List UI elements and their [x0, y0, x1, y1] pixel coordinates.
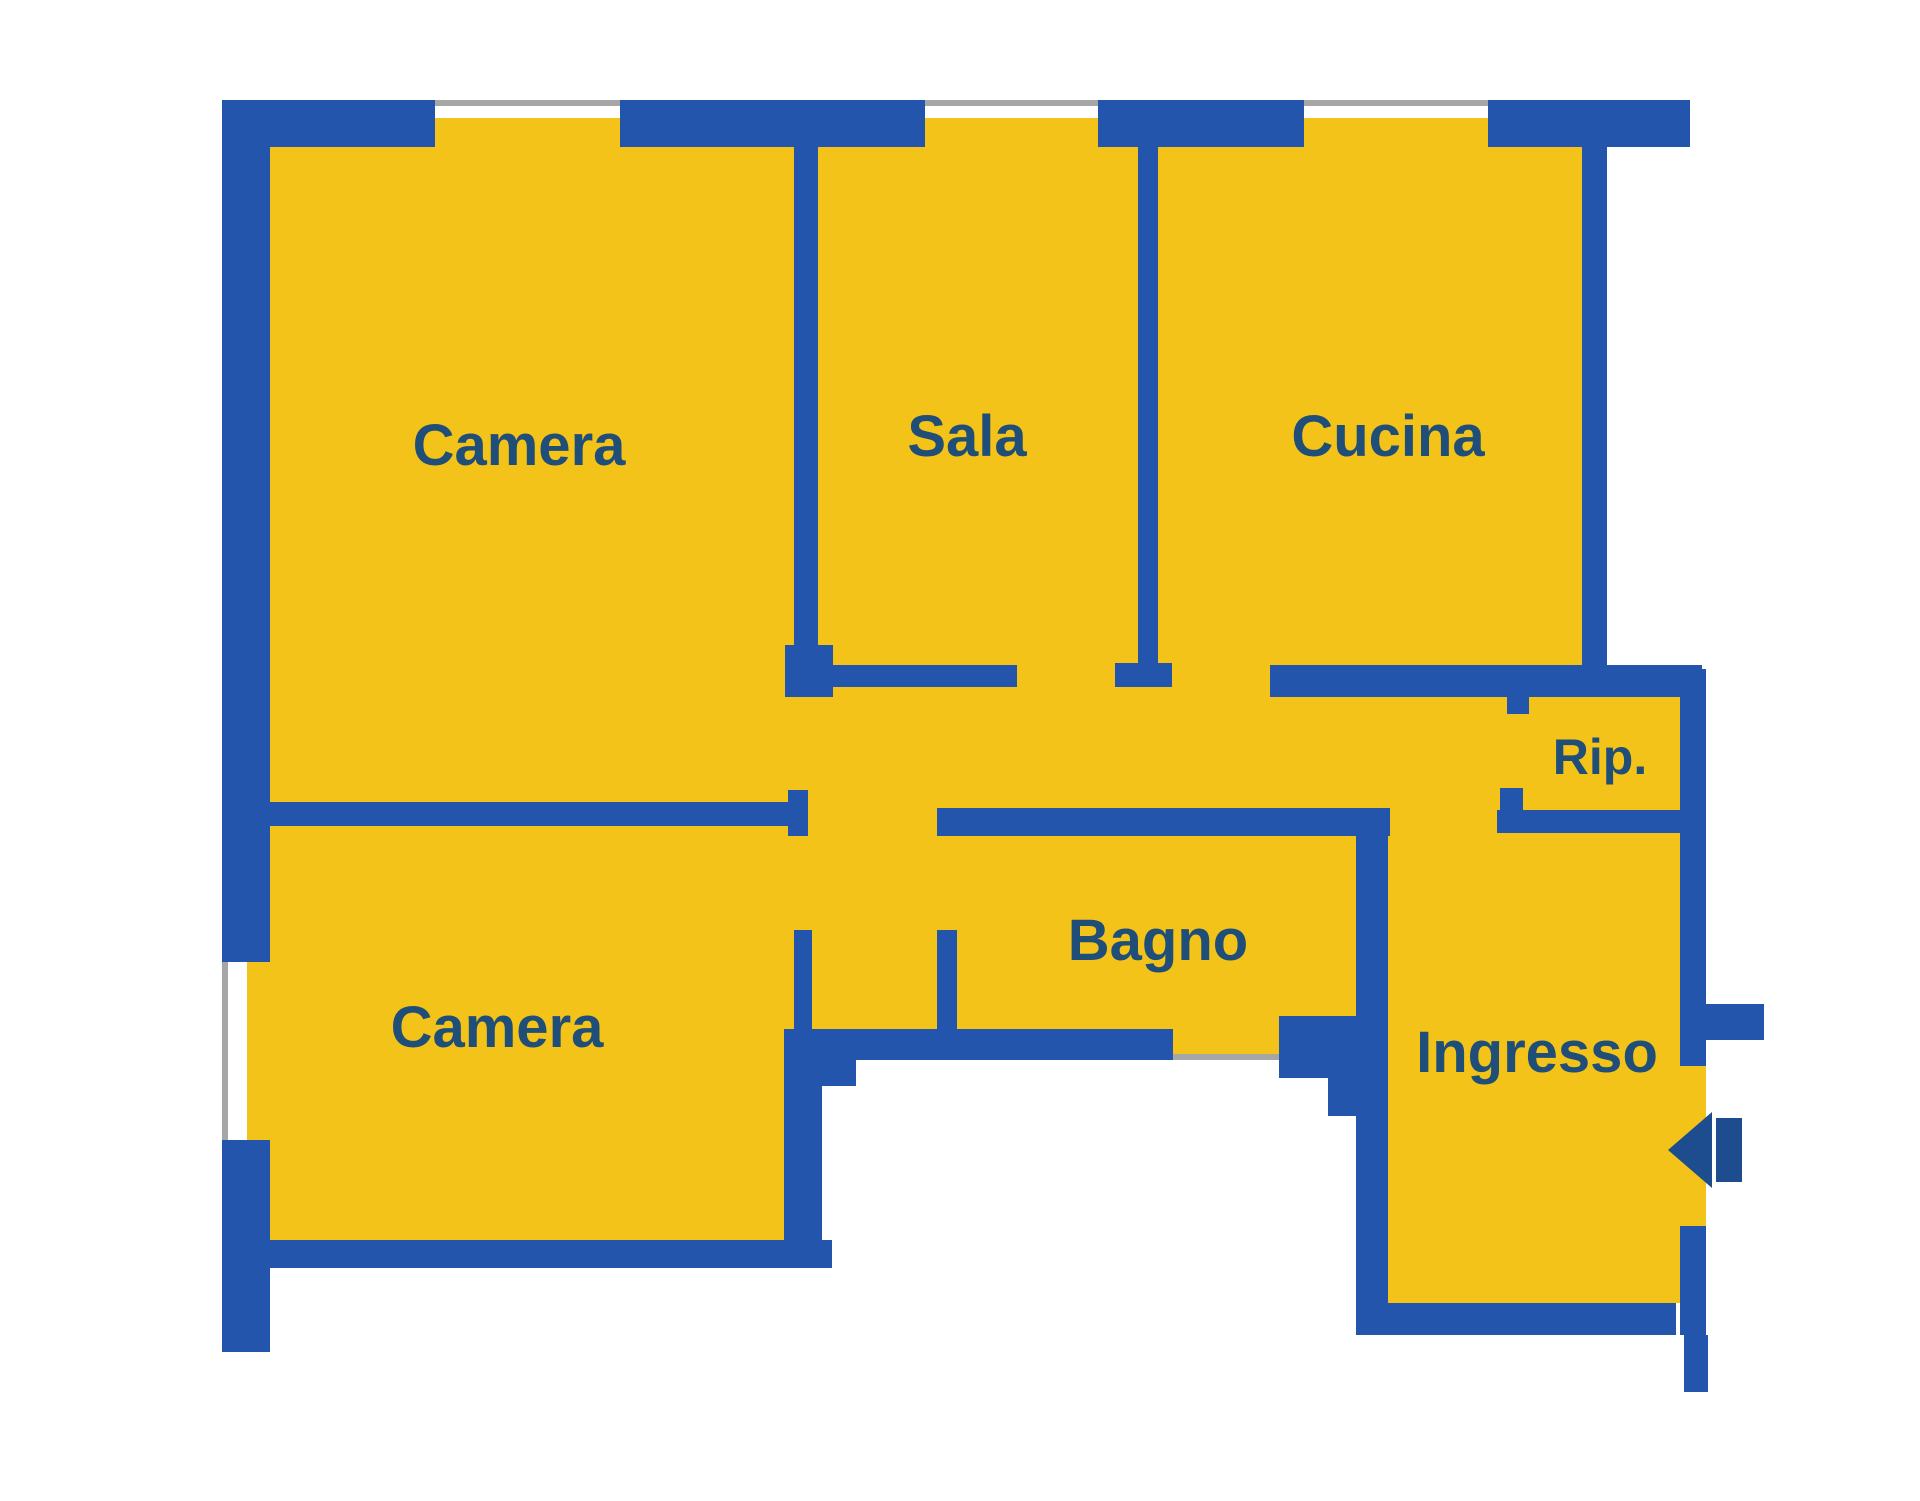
floorplan-page: Camera Sala Cucina Rip. Bagno Camera Ing… — [0, 0, 1920, 1501]
wall-entry-top-stub — [1702, 1004, 1764, 1040]
wall-corridor-top-right — [1270, 665, 1702, 697]
wall-bagno-top — [937, 808, 1390, 836]
window-top-2 — [925, 100, 1098, 106]
room-label-ingresso: Ingresso — [1416, 1020, 1658, 1085]
wall-ingresso-left — [1356, 808, 1388, 1335]
wall-camera2-right-column — [784, 1029, 822, 1268]
wall-cucina-right — [1582, 137, 1607, 669]
wall-camera2-right-jamb — [794, 930, 812, 1029]
wall-left-upper — [222, 100, 270, 962]
wall-left-lower — [222, 1140, 270, 1352]
window-top-3 — [1304, 100, 1488, 106]
wall-corridor-top-left — [833, 665, 1017, 687]
floor-areas — [247, 118, 1706, 1303]
wall-rip-left-jamb-bottom — [1500, 788, 1523, 810]
floor-ingresso — [1388, 697, 1680, 1303]
window-bottom — [1173, 1054, 1279, 1060]
wall-camera-sala-foot — [785, 645, 833, 697]
wall-step-below — [822, 1060, 856, 1086]
wall-top-3 — [1098, 100, 1304, 147]
room-label-camera-top: Camera — [413, 413, 627, 478]
floorplan-drawing: Camera Sala Cucina Rip. Bagno Camera Ing… — [0, 0, 1920, 1501]
room-label-cucina: Cucina — [1291, 404, 1485, 469]
wall-camera2-bottom — [270, 1240, 832, 1268]
wall-ingresso-left-jamb — [1328, 1078, 1356, 1116]
door-arrow-bar — [1716, 1118, 1742, 1182]
room-label-bagno: Bagno — [1068, 908, 1248, 973]
wall-right-bottom-stub — [1684, 1335, 1708, 1392]
wall-top-2 — [620, 100, 925, 147]
wall-right-lower — [1680, 1226, 1706, 1335]
window-left — [222, 962, 228, 1140]
wall-camera1-bottom-jamb — [788, 790, 808, 836]
room-label-rip: Rip. — [1553, 729, 1647, 785]
wall-rip-bottom — [1497, 810, 1692, 833]
wall-bottom-middle-right — [1279, 1016, 1356, 1078]
wall-camera1-bottom — [270, 802, 788, 826]
window-top-1 — [435, 100, 620, 106]
wall-ingresso-bottom — [1356, 1303, 1676, 1335]
wall-bagno-left-jamb — [937, 930, 957, 1029]
wall-bottom-middle-left — [784, 1029, 1173, 1060]
wall-rip-left-jamb-top — [1507, 697, 1529, 714]
room-label-sala: Sala — [907, 404, 1027, 469]
wall-sala-cucina-foot — [1115, 663, 1172, 687]
floor-window-sill-bottom — [1173, 1029, 1279, 1054]
room-label-camera-bottom: Camera — [391, 995, 605, 1060]
wall-camera-sala — [794, 147, 818, 645]
wall-sala-cucina — [1138, 147, 1158, 663]
